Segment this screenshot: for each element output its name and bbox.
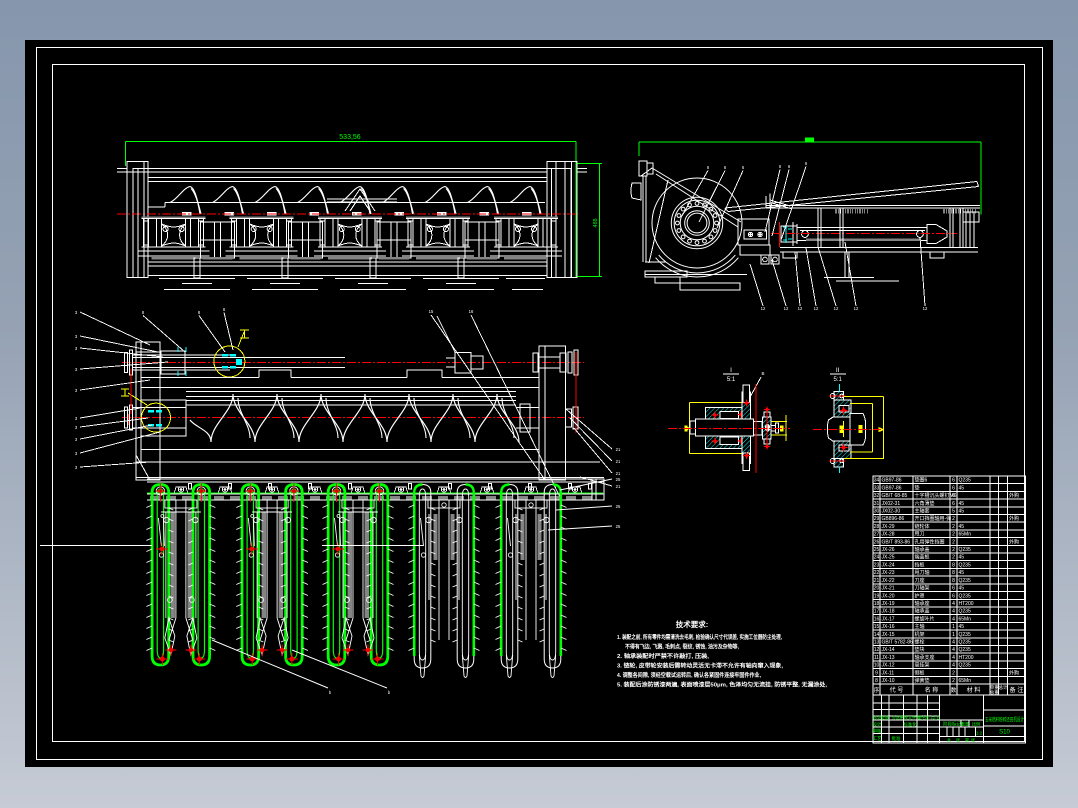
svg-text:主轴: 主轴 [915, 623, 925, 630]
svg-text:JX-13: JX-13 [882, 655, 895, 661]
svg-text:JX02-30: JX02-30 [882, 509, 901, 515]
svg-text:Q235: Q235 [959, 663, 971, 669]
svg-text:29: 29 [874, 516, 880, 522]
svg-text:JX-26: JX-26 [882, 547, 895, 553]
svg-text:外购: 外购 [1009, 669, 1019, 676]
svg-text:5:1: 5:1 [834, 377, 843, 383]
svg-text:阶段标记: 阶段标记 [943, 721, 961, 728]
svg-text:12: 12 [798, 306, 803, 311]
svg-text:GB97-86: GB97-86 [882, 478, 902, 484]
svg-text:标准化: 标准化 [903, 721, 917, 728]
svg-text:护罩: 护罩 [915, 592, 925, 599]
svg-text:65Mn: 65Mn [959, 616, 972, 622]
svg-text:JX-24: JX-24 [882, 562, 895, 568]
svg-text:Q235: Q235 [959, 632, 971, 638]
svg-text:6: 6 [952, 485, 955, 491]
svg-text:2: 2 [952, 555, 955, 561]
svg-text:JX-21: JX-21 [882, 586, 895, 592]
svg-text:GB896-86: GB896-86 [882, 516, 905, 522]
svg-text:45: 45 [959, 570, 965, 576]
svg-text:21: 21 [616, 484, 621, 489]
svg-text:4: 4 [952, 647, 955, 653]
svg-text:JX-28: JX-28 [882, 532, 895, 538]
svg-text:外购: 外购 [1009, 515, 1019, 522]
svg-text:21: 21 [874, 578, 880, 584]
svg-text:JX-11: JX-11 [882, 670, 895, 676]
svg-text:不得有飞边, 飞溅, 毛刺点, 裂纹, 锈蚀, 油污及杂物等: 不得有飞边, 飞溅, 毛刺点, 裂纹, 锈蚀, 油污及杂物等, [625, 643, 739, 651]
svg-text:4: 4 [952, 639, 955, 645]
svg-text:六角薄垫: 六角薄垫 [915, 500, 935, 507]
svg-text:Q235: Q235 [959, 609, 971, 615]
svg-text:65Mn: 65Mn [959, 532, 972, 538]
svg-text:主轴套: 主轴套 [915, 508, 930, 515]
svg-text:5:1: 5:1 [727, 377, 736, 383]
svg-text:链轮体: 链轮体 [915, 523, 930, 530]
svg-text:4: 4 [952, 663, 955, 669]
svg-text:垫: 垫 [915, 484, 920, 491]
svg-text:25: 25 [616, 477, 621, 482]
svg-text:2: 2 [952, 524, 955, 530]
svg-text:HT200: HT200 [959, 601, 974, 607]
svg-text:32: 32 [874, 493, 880, 499]
svg-text:33: 33 [874, 485, 880, 491]
svg-text:13: 13 [874, 639, 880, 645]
svg-text:JX-12: JX-12 [882, 663, 895, 669]
svg-text:11: 11 [874, 655, 879, 661]
svg-text:6: 6 [952, 593, 955, 599]
svg-text:2: 2 [952, 670, 955, 676]
svg-text:Q235: Q235 [959, 593, 971, 599]
svg-text:GB/T 893-86: GB/T 893-86 [882, 539, 911, 545]
svg-text:6: 6 [952, 501, 955, 507]
svg-text:8: 8 [952, 562, 955, 568]
svg-text:4: 4 [952, 609, 955, 615]
svg-text:1. 装配之前, 所有零件均需清洗去毛刺, 检验确认尺寸代误: 1. 装配之前, 所有零件均需清洗去毛刺, 检验确认尺寸代误差, 实施工位器防尘… [617, 633, 782, 641]
svg-text:轴承盖: 轴承盖 [915, 546, 930, 553]
svg-text:玉米秸秆粉碎还田机设计: 玉米秸秆粉碎还田机设计 [985, 716, 1024, 724]
svg-text:25: 25 [616, 504, 621, 509]
svg-text:JX02-31: JX02-31 [882, 501, 901, 507]
svg-text:25: 25 [874, 547, 880, 553]
svg-text:II: II [836, 367, 840, 374]
svg-text:JX-23: JX-23 [882, 570, 895, 576]
svg-text:侧板: 侧板 [915, 669, 925, 676]
svg-text:45: 45 [959, 524, 965, 530]
svg-text:螺旋叶片: 螺旋叶片 [915, 615, 935, 622]
svg-text:刀轴架: 刀轴架 [915, 585, 930, 592]
svg-text:JX-15: JX-15 [882, 632, 895, 638]
svg-text:8: 8 [952, 578, 955, 584]
svg-text:Q235: Q235 [959, 639, 971, 645]
svg-text:Q235: Q235 [959, 547, 971, 553]
svg-text:JX-25: JX-25 [882, 555, 895, 561]
svg-text:12: 12 [874, 647, 880, 653]
svg-text:序: 序 [874, 686, 880, 694]
svg-text:外购: 外购 [1009, 492, 1019, 499]
svg-text:JX-20: JX-20 [882, 593, 895, 599]
svg-text:2: 2 [952, 539, 955, 545]
svg-text:共: 共 [947, 737, 951, 744]
svg-text:十字槽沉头螺钉M6: 十字槽沉头螺钉M6 [915, 492, 957, 499]
svg-text:JX-19: JX-19 [882, 601, 895, 607]
svg-text:S10: S10 [999, 730, 1010, 736]
svg-text:第: 第 [965, 737, 969, 744]
svg-text:21: 21 [616, 459, 621, 464]
svg-text:8: 8 [875, 678, 878, 684]
svg-text:15: 15 [429, 309, 434, 314]
svg-text:31: 31 [874, 501, 880, 507]
svg-text:名 称: 名 称 [925, 686, 939, 694]
svg-text:6: 6 [952, 493, 955, 499]
svg-text:4. 调整各间隙, 须经空载试运转后, 确认各紧固件连接牢固: 4. 调整各间隙, 须经空载试运转后, 确认各紧固件连接牢固件作业, [617, 671, 761, 679]
svg-text:45: 45 [959, 586, 965, 592]
svg-text:4: 4 [952, 616, 955, 622]
svg-text:垫块: 垫块 [915, 646, 925, 653]
svg-text:甩刀: 甩刀 [915, 532, 925, 538]
svg-text:28: 28 [874, 524, 880, 530]
svg-text:24: 24 [874, 555, 880, 561]
svg-text:Q235: Q235 [959, 478, 971, 484]
svg-text:16: 16 [469, 309, 474, 314]
svg-text:刀座: 刀座 [915, 577, 925, 584]
svg-text:年.月.日: 年.月.日 [926, 714, 941, 721]
svg-text:2: 2 [952, 547, 955, 553]
svg-text:2: 2 [952, 532, 955, 538]
svg-text:代 号: 代 号 [890, 686, 904, 694]
svg-text:审核: 审核 [873, 728, 882, 735]
svg-text:Q235: Q235 [959, 647, 971, 653]
svg-text:Q235: Q235 [959, 578, 971, 584]
svg-text:4: 4 [952, 655, 955, 661]
svg-text:JX-29: JX-29 [882, 524, 895, 530]
svg-text:端盖板: 端盖板 [915, 554, 930, 561]
svg-text:6: 6 [952, 478, 955, 484]
svg-text:45: 45 [959, 509, 965, 515]
svg-text:悬挂架: 悬挂架 [915, 662, 930, 669]
svg-text:B: B [761, 371, 764, 376]
svg-text:工艺: 工艺 [873, 736, 882, 741]
svg-text:25: 25 [616, 524, 621, 529]
svg-text:JX-14: JX-14 [882, 647, 895, 653]
svg-text:23: 23 [874, 562, 880, 568]
svg-text:34: 34 [874, 478, 880, 484]
svg-text:1: 1 [952, 624, 955, 630]
svg-text:488: 488 [593, 218, 599, 227]
svg-text:轴承盖: 轴承盖 [915, 608, 930, 615]
svg-text:JX-18: JX-18 [882, 609, 895, 615]
svg-text:45: 45 [959, 555, 965, 561]
svg-text:甩刀轴: 甩刀轴 [915, 569, 930, 576]
svg-text:JX-17: JX-17 [882, 616, 895, 622]
svg-text:螺栓: 螺栓 [915, 638, 925, 645]
svg-text:Q235: Q235 [959, 562, 971, 568]
svg-text:设计: 设计 [873, 721, 882, 728]
svg-text:垫圈6: 垫圈6 [915, 477, 928, 484]
svg-text:轴承支座: 轴承支座 [915, 654, 935, 661]
svg-text:2: 2 [952, 516, 955, 522]
svg-text:轴承座: 轴承座 [915, 600, 930, 607]
svg-text:技术要求:: 技术要求: [676, 619, 709, 629]
svg-text:2. 轴承装配时严禁不许敲打, 压装,: 2. 轴承装配时严禁不许敲打, 压装, [617, 652, 709, 660]
svg-text:批准: 批准 [892, 735, 901, 742]
svg-text:45: 45 [959, 624, 965, 630]
svg-text:材 料: 材 料 [967, 686, 981, 694]
svg-text:JX-10: JX-10 [882, 678, 895, 684]
svg-text:外购: 外购 [1009, 538, 1019, 545]
svg-text:27: 27 [874, 532, 880, 538]
svg-text:总计: 总计 [999, 684, 1008, 691]
svg-text:JX-22: JX-22 [882, 578, 895, 584]
svg-text:6: 6 [952, 586, 955, 592]
svg-text:弹簧垫: 弹簧垫 [915, 677, 930, 684]
svg-text:开口挡圈轴用-弹: 开口挡圈轴用-弹 [915, 515, 952, 522]
svg-text:10: 10 [874, 663, 880, 669]
svg-text:9: 9 [875, 670, 878, 676]
svg-text:18: 18 [874, 601, 880, 607]
svg-text:45: 45 [959, 485, 965, 491]
svg-text:4: 4 [952, 601, 955, 607]
svg-text:12: 12 [854, 306, 859, 311]
svg-text:5: 5 [952, 509, 955, 515]
svg-text:45: 45 [959, 501, 965, 507]
svg-text:2: 2 [952, 678, 955, 684]
svg-text:HT200: HT200 [959, 655, 974, 661]
svg-text:1:2: 1:2 [976, 731, 983, 736]
svg-text:12: 12 [761, 306, 766, 311]
svg-text:GB97-86: GB97-86 [882, 485, 902, 491]
svg-text:12: 12 [814, 306, 819, 311]
svg-text:65Mn: 65Mn [959, 678, 972, 684]
svg-text:21: 21 [616, 471, 621, 476]
svg-text:17: 17 [874, 609, 880, 615]
svg-text:8: 8 [952, 570, 955, 576]
svg-text:GB/T 5782-86: GB/T 5782-86 [882, 639, 914, 645]
svg-text:19: 19 [874, 593, 880, 599]
svg-text:15: 15 [874, 624, 880, 630]
svg-text:5. 装配后涂防锈漆两遍, 表面喷漆层50μm, 色泽均匀无: 5. 装配后涂防锈漆两遍, 表面喷漆层50μm, 色泽均匀无流挂, 防锈平整, … [617, 681, 827, 689]
svg-text:备 注: 备 注 [1010, 686, 1024, 694]
svg-text:14: 14 [874, 632, 880, 638]
svg-text:孔用弹性挡圈: 孔用弹性挡圈 [915, 538, 945, 545]
svg-text:12: 12 [834, 306, 839, 311]
svg-text:12: 12 [784, 306, 789, 311]
svg-text:GB/T 68-85: GB/T 68-85 [882, 493, 908, 499]
svg-text:3. 链轮, 皮带轮安装后需转动灵活无卡滞不允许有轴向窜入现: 3. 链轮, 皮带轮安装后需转动灵活无卡滞不允许有轴向窜入现象, [617, 662, 783, 670]
svg-text:12: 12 [923, 306, 928, 311]
svg-text:1: 1 [952, 632, 955, 638]
svg-text:20: 20 [874, 586, 880, 592]
svg-text:30: 30 [874, 509, 880, 515]
svg-text:比例: 比例 [972, 721, 980, 728]
svg-text:重量: 重量 [961, 721, 969, 728]
svg-text:I: I [730, 367, 732, 374]
svg-text:26: 26 [874, 539, 880, 545]
svg-text:JX-16: JX-16 [882, 624, 895, 630]
svg-text:机架: 机架 [915, 631, 925, 638]
svg-text:处数: 处数 [881, 714, 890, 721]
svg-text:挡板: 挡板 [915, 561, 925, 568]
svg-text:数: 数 [951, 686, 957, 694]
svg-text:16: 16 [874, 616, 880, 622]
svg-text:22: 22 [874, 570, 880, 576]
svg-text:21: 21 [616, 447, 621, 452]
svg-text:533,56: 533,56 [339, 134, 361, 141]
